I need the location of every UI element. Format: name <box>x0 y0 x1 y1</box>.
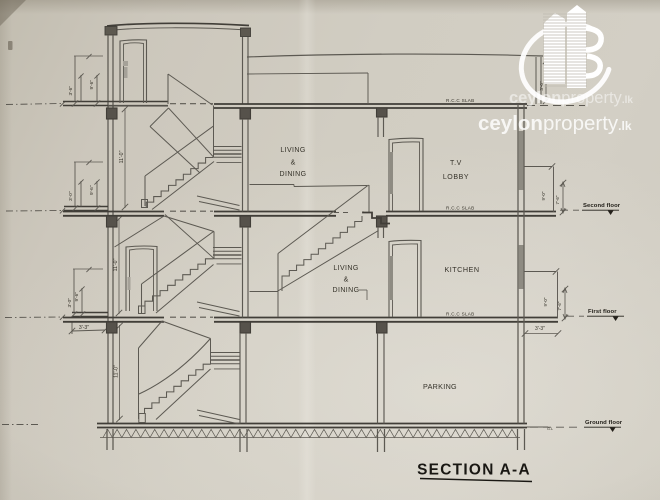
svg-text:9'-6": 9'-6" <box>89 185 95 195</box>
svg-text:3'-0": 3'-0" <box>68 191 74 201</box>
svg-text:LOBBY: LOBBY <box>443 174 469 181</box>
svg-text:R.C.C SLAB: R.C.C SLAB <box>446 98 475 103</box>
svg-text:&: & <box>291 160 296 167</box>
svg-text:11'-0": 11'-0" <box>119 150 125 163</box>
svg-text:SECTION A-A: SECTION A-A <box>417 462 531 479</box>
svg-text:9'-0": 9'-0" <box>541 191 546 200</box>
svg-text:Second floor: Second floor <box>583 203 621 209</box>
svg-text:ceylonproperty.lk: ceylonproperty.lk <box>509 89 633 107</box>
svg-text:ceylonproperty.lk: ceylonproperty.lk <box>478 112 632 135</box>
svg-text:Ground floor: Ground floor <box>585 420 623 426</box>
svg-text:11'-0": 11'-0" <box>114 365 120 378</box>
svg-text:R.C.C SLAB: R.C.C SLAB <box>446 312 475 317</box>
svg-text:DINING: DINING <box>280 171 307 178</box>
svg-text:KITCHEN: KITCHEN <box>444 265 479 274</box>
svg-text:PARKING: PARKING <box>423 382 457 391</box>
svg-text:11'-0": 11'-0" <box>113 258 119 271</box>
svg-text:&: & <box>344 277 349 284</box>
svg-text:T.V: T.V <box>450 160 462 167</box>
svg-text:LIVING: LIVING <box>280 147 305 154</box>
svg-text:9'-0": 9'-0" <box>543 297 548 306</box>
svg-text:3'-3": 3'-3" <box>535 326 545 332</box>
svg-text:3'-6": 3'-6" <box>68 86 74 96</box>
svg-text:9'-6": 9'-6" <box>89 80 95 90</box>
svg-text:First floor: First floor <box>588 309 617 315</box>
svg-text:G.L: G.L <box>547 427 553 431</box>
svg-text:7'-6": 7'-6" <box>555 195 560 204</box>
svg-text:DINING: DINING <box>333 287 360 294</box>
svg-text:LIVING: LIVING <box>333 265 358 272</box>
svg-text:R.C.C SLAB: R.C.C SLAB <box>446 206 475 211</box>
svg-text:3'-0": 3'-0" <box>67 298 73 308</box>
svg-text:9'-6": 9'-6" <box>74 292 80 302</box>
svg-text:7'-6": 7'-6" <box>557 301 562 310</box>
